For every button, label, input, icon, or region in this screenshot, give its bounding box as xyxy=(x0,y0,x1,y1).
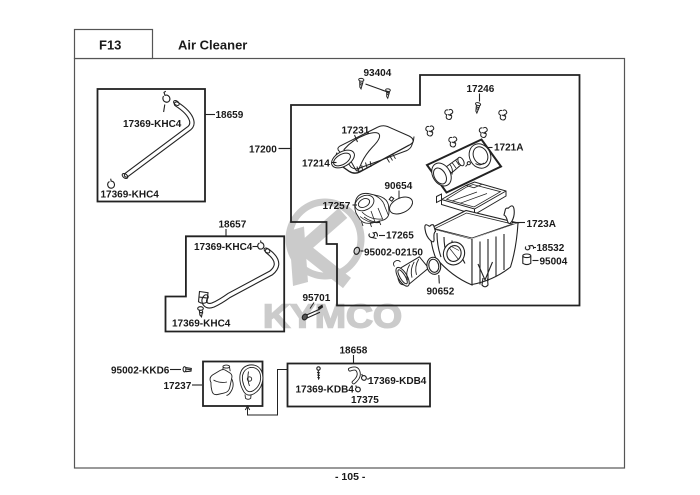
svg-text:18657: 18657 xyxy=(219,220,247,231)
svg-text:90654: 90654 xyxy=(385,181,413,192)
svg-text:17369-KHC4: 17369-KHC4 xyxy=(123,119,182,130)
svg-text:17265: 17265 xyxy=(386,231,414,242)
svg-text:93404: 93404 xyxy=(364,68,392,79)
svg-text:18532: 18532 xyxy=(537,243,565,254)
svg-text:17237: 17237 xyxy=(164,381,192,392)
svg-text:Air Cleaner: Air Cleaner xyxy=(178,38,247,53)
svg-text:17231: 17231 xyxy=(342,126,370,137)
svg-text:17246: 17246 xyxy=(467,84,495,95)
svg-text:1723A: 1723A xyxy=(527,219,556,230)
svg-text:17369-KHC4: 17369-KHC4 xyxy=(172,319,231,330)
svg-text:- 105 -: - 105 - xyxy=(335,471,366,483)
svg-text:18659: 18659 xyxy=(216,110,244,121)
svg-text:17375: 17375 xyxy=(351,395,379,406)
svg-text:95004: 95004 xyxy=(540,257,568,268)
svg-text:17369-KDB4: 17369-KDB4 xyxy=(368,376,427,387)
svg-text:17369-KHC4: 17369-KHC4 xyxy=(101,190,160,201)
svg-text:95701: 95701 xyxy=(303,293,331,304)
svg-text:95002-02150: 95002-02150 xyxy=(364,248,423,259)
svg-text:17369-KDB4: 17369-KDB4 xyxy=(296,385,355,396)
svg-text:17214: 17214 xyxy=(302,159,330,170)
svg-text:17200: 17200 xyxy=(249,145,277,156)
svg-text:F13: F13 xyxy=(99,38,121,53)
svg-text:17369-KHC4: 17369-KHC4 xyxy=(194,242,253,253)
svg-text:95002-KKD6: 95002-KKD6 xyxy=(111,366,170,377)
svg-text:17257: 17257 xyxy=(323,201,351,212)
svg-text:18658: 18658 xyxy=(340,346,368,357)
svg-text:90652: 90652 xyxy=(427,287,455,298)
svg-text:1721A: 1721A xyxy=(494,143,523,154)
